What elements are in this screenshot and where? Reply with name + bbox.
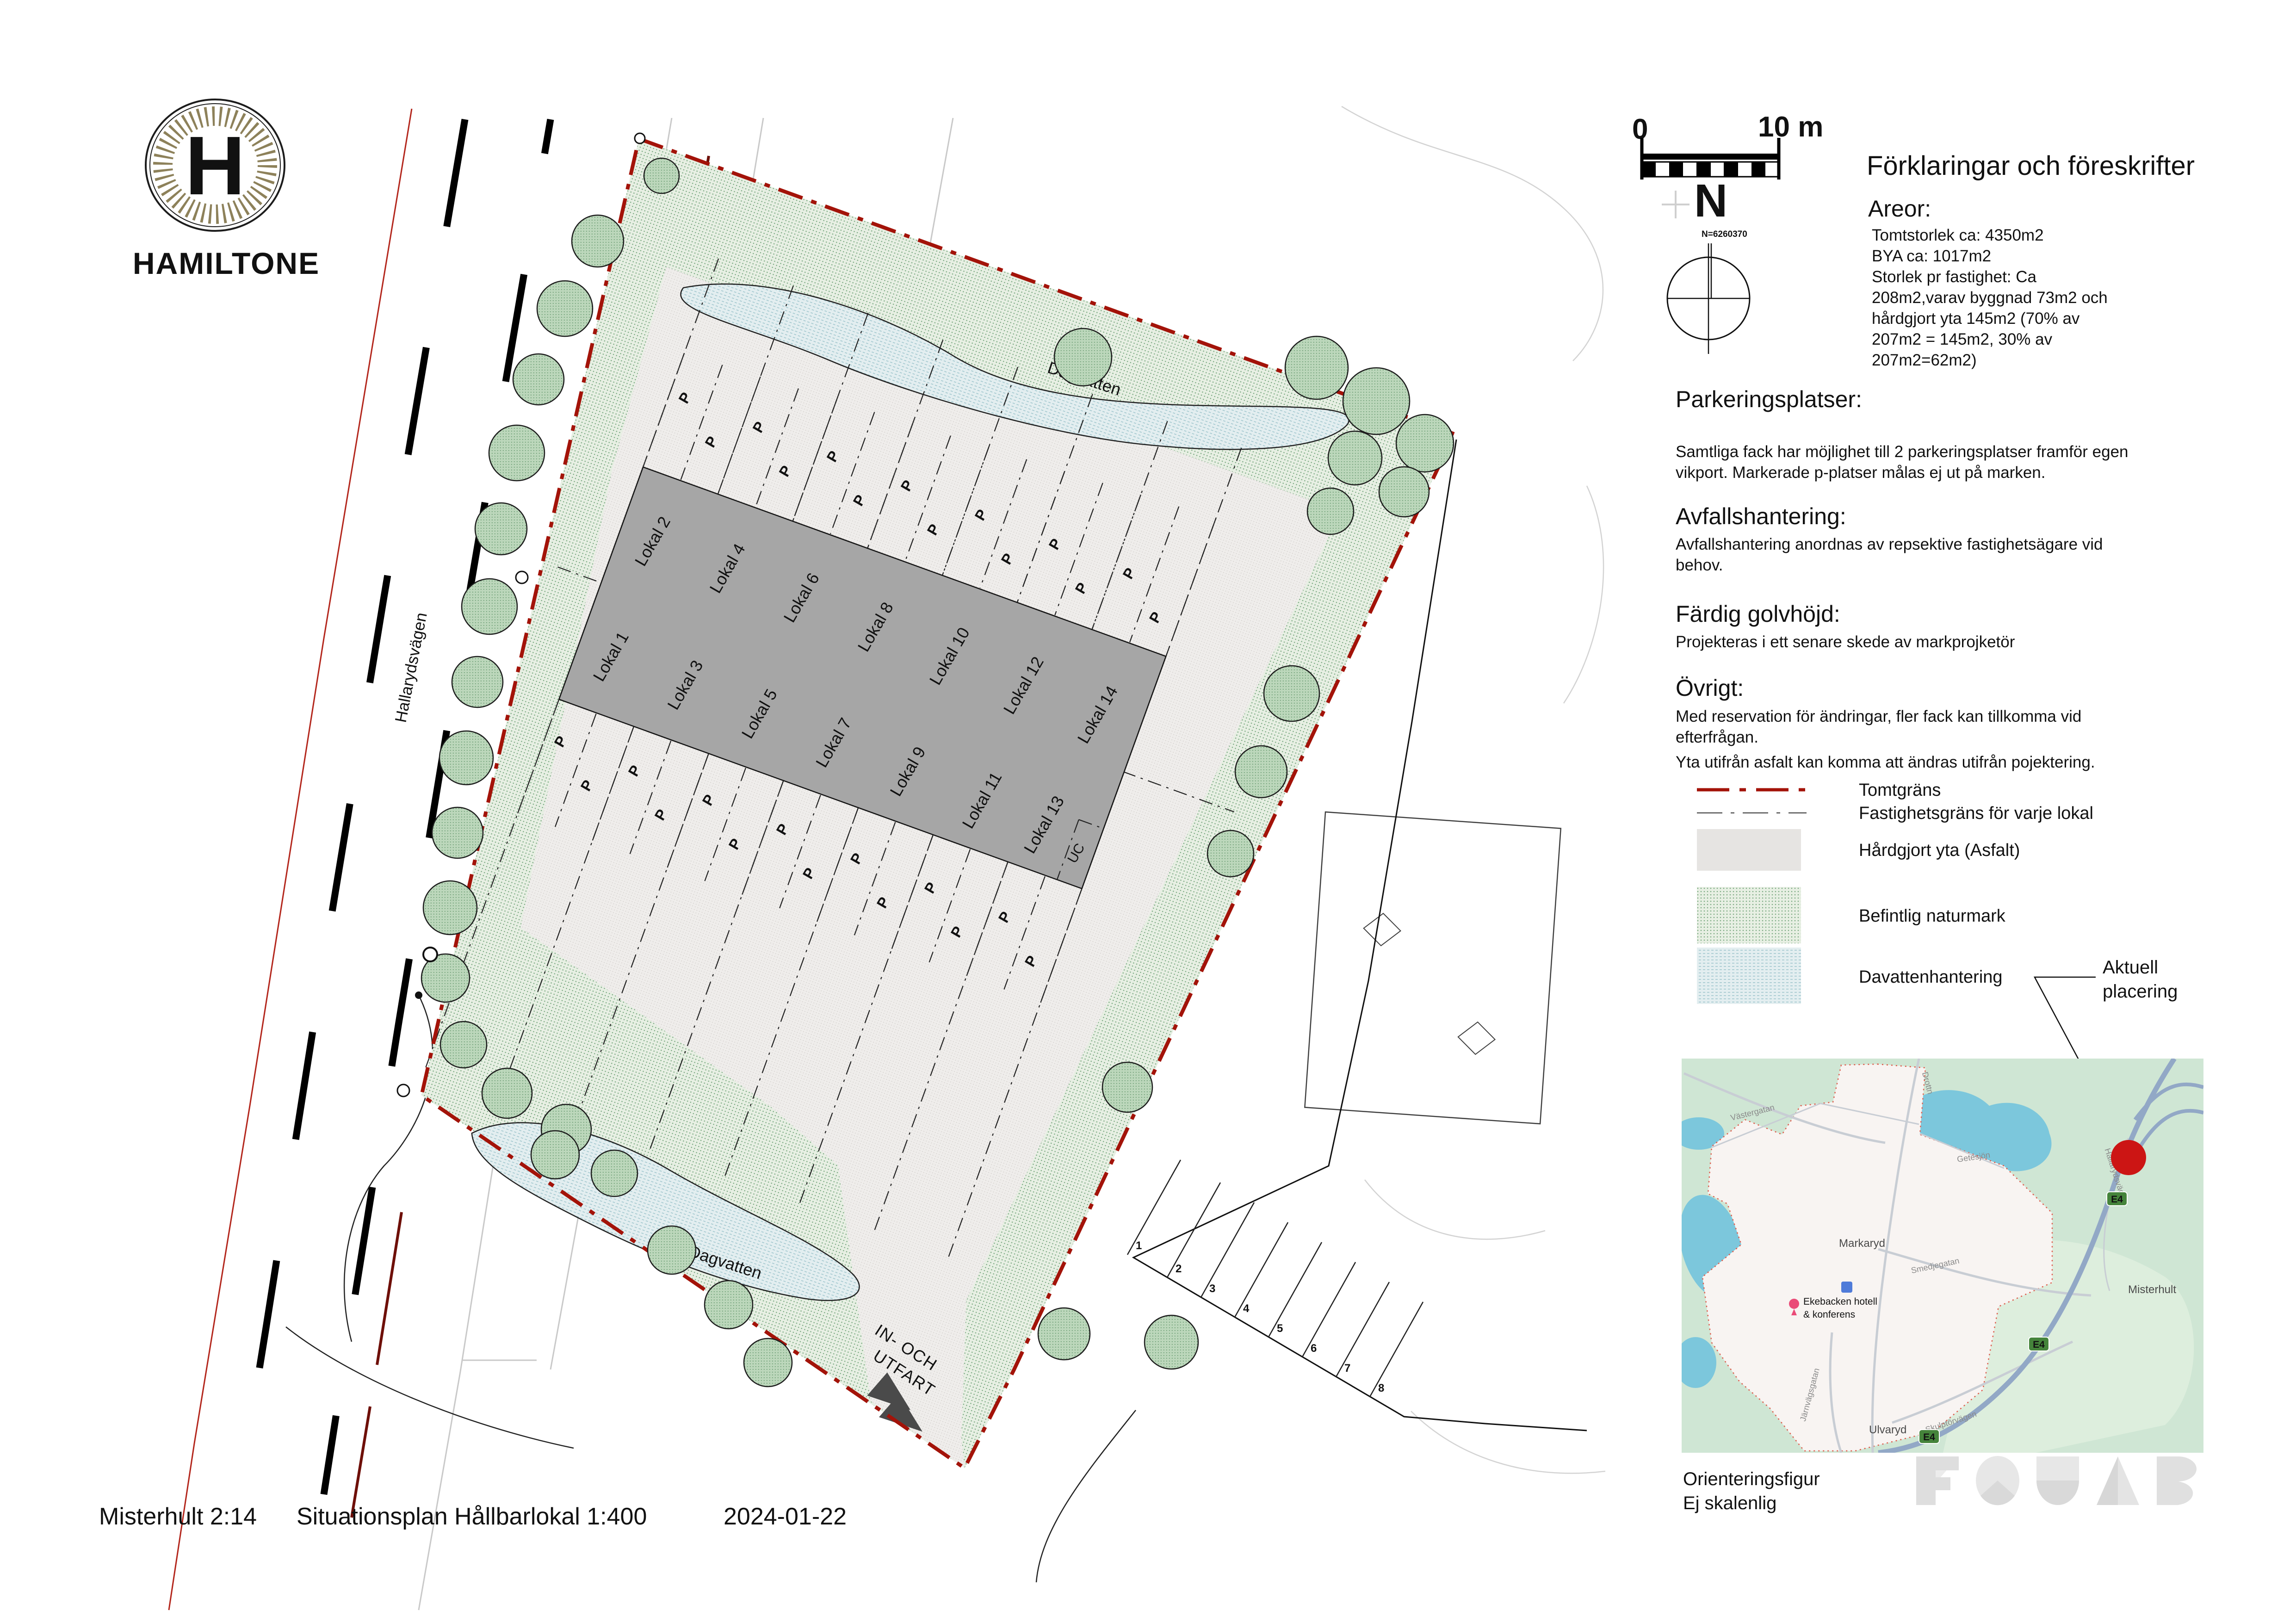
avfall-heading: Avfallshantering: (1676, 503, 1846, 529)
ovrigt-heading: Övrigt: (1676, 675, 1744, 701)
areor-line: BYA ca: 1017m2 (1872, 247, 1991, 265)
tree (452, 657, 503, 707)
map-caption-line1: Orienteringsfigur (1683, 1469, 1820, 1489)
parkering-heading: Parkeringsplatser: (1676, 386, 1862, 412)
drawing-sheet: Hallarydsvägen 1 2 3 4 5 6 7 8 (0, 0, 2296, 1623)
boundary-marker (397, 1084, 409, 1096)
legend-asphalt-label: Hårdgjort yta (Asfalt) (1859, 841, 2020, 860)
drawing-title: Situationsplan Hållbarlokal 1:400 (297, 1503, 647, 1530)
north-coordinate: N=6260370 (1702, 229, 1747, 239)
logo-wordmark: HAMILTONE (133, 246, 320, 280)
tree (1102, 1062, 1152, 1112)
tree (1235, 746, 1287, 798)
areor-line: Tomtstorlek ca: 4350m2 (1872, 226, 2044, 244)
areor-line: 207m2=62m2) (1872, 351, 1977, 369)
fence-number: 7 (1344, 1362, 1350, 1375)
tree (531, 1131, 579, 1179)
tree (705, 1281, 753, 1329)
current-location-dot (2111, 1140, 2146, 1175)
fence-number: 4 (1243, 1302, 1250, 1315)
tree (1343, 368, 1410, 434)
golvhojd-line: Projekteras i ett senare skede av markpr… (1676, 633, 2015, 651)
tree (423, 881, 477, 935)
tree (513, 354, 564, 405)
areor-line: 208m2,varav byggnad 73m2 och (1872, 289, 2108, 307)
transit-station-icon (1841, 1282, 1852, 1293)
tree (462, 579, 517, 634)
tree (744, 1338, 792, 1387)
callout-line1: Aktuell (2103, 957, 2158, 978)
drawing-date: 2024-01-22 (724, 1503, 847, 1530)
ovrigt-line: Yta utifrån asfalt kan komma att ändras … (1676, 753, 2095, 771)
ovrigt-line: efterfrågan. (1676, 728, 1758, 746)
legend-dagvatten-swatch (1697, 948, 1801, 1004)
poi-label-line1: Ekebacken hotell (1803, 1296, 1877, 1307)
tree (572, 215, 624, 267)
property-designation: Misterhult 2:14 (99, 1503, 257, 1530)
areor-line: Storlek pr fastighet: Ca (1872, 268, 2037, 286)
boundary-marker (423, 948, 437, 961)
tree (1307, 488, 1354, 534)
e4-badge: E4 (2111, 1194, 2123, 1205)
boundary-marker (635, 133, 645, 143)
golvhojd-heading: Färdig golvhöjd: (1676, 601, 1840, 627)
existing-building-outline (1305, 812, 1560, 1124)
callout-line2: placering (2103, 981, 2178, 1002)
poi-pin-icon (1789, 1299, 1799, 1309)
ovrigt-line: Med reservation för ändringar, fler fack… (1676, 707, 2081, 725)
legend-fastighetsgrans-label: Fastighetsgräns för varje lokal (1859, 804, 2093, 823)
scale-zero-label: 0 (1632, 113, 1648, 145)
poi-label-line2: & konferens (1803, 1309, 1855, 1320)
legend-dagvatten-label: Davattenhantering (1859, 967, 2003, 987)
tree (482, 1068, 532, 1118)
fence-number: 8 (1378, 1382, 1384, 1394)
tree (439, 731, 493, 785)
boundary-marker (516, 571, 528, 583)
fence-number: 5 (1277, 1322, 1283, 1335)
legend-naturmark-label: Befintlig naturmark (1859, 906, 2006, 926)
tree (644, 158, 679, 193)
fence-number: 2 (1176, 1263, 1182, 1275)
tree (440, 1022, 487, 1068)
e4-badge: E4 (2033, 1339, 2045, 1350)
e4-badge: E4 (1923, 1432, 1935, 1443)
tree (537, 281, 593, 336)
tree (432, 807, 483, 858)
existing-building (1305, 812, 1560, 1124)
legend-asphalt-swatch (1697, 829, 1801, 871)
north-letter: N (1694, 175, 1727, 227)
scale-max-label: 10 m (1758, 111, 1823, 143)
scale-bar-top (1642, 154, 1779, 160)
areor-line: 207m2 = 145m2, 30% av (1872, 330, 2053, 348)
fence-number: 1 (1136, 1239, 1142, 1252)
tree (1285, 336, 1348, 399)
tree (475, 503, 527, 555)
site-plan-sheet: Hallarydsvägen 1 2 3 4 5 6 7 8 (0, 0, 2296, 1623)
orientation-map: Västergatan Drottn Getesjön Markaryd Sme… (1669, 1059, 2203, 1453)
areor-line: hårdgjort yta 145m2 (70% av (1872, 310, 2080, 328)
tree (648, 1226, 696, 1274)
areor-heading: Areor: (1868, 196, 1931, 222)
tree (591, 1150, 637, 1196)
map-district-label: Misterhult (2128, 1283, 2176, 1296)
tree (1038, 1308, 1090, 1360)
fence-number: 6 (1311, 1342, 1317, 1355)
parkering-line: Samtliga fack har möjlighet till 2 parke… (1676, 443, 2129, 461)
tree (1396, 415, 1454, 472)
legend-naturmark-swatch (1697, 887, 1801, 943)
tree (1328, 431, 1382, 485)
tree (489, 425, 545, 481)
tree (1054, 328, 1112, 386)
boundary-marker-dot (415, 991, 422, 999)
avfall-line: behov. (1676, 556, 1723, 574)
tree (1379, 467, 1429, 517)
tree (1145, 1315, 1198, 1369)
map-district-label: Ulvaryd (1869, 1424, 1906, 1436)
notes-title: Förklaringar och föreskrifter (1867, 151, 2195, 181)
parkering-line: vikport. Markerade p-platser målas ej ut… (1676, 464, 2046, 482)
logo-monogram: H (185, 119, 245, 212)
legend-tomtgrans-label: Tomtgräns (1859, 781, 1941, 800)
map-town-label: Markaryd (1839, 1237, 1885, 1250)
title-block: Misterhult 2:14 Situationsplan Hållbarlo… (99, 1503, 847, 1530)
tree (1264, 666, 1319, 721)
avfall-line: Avfallshantering anordnas av repsektive … (1676, 535, 2103, 553)
map-caption-line2: Ej skalenlig (1683, 1493, 1776, 1513)
tree (1207, 830, 1254, 877)
fence-number: 3 (1209, 1282, 1215, 1295)
